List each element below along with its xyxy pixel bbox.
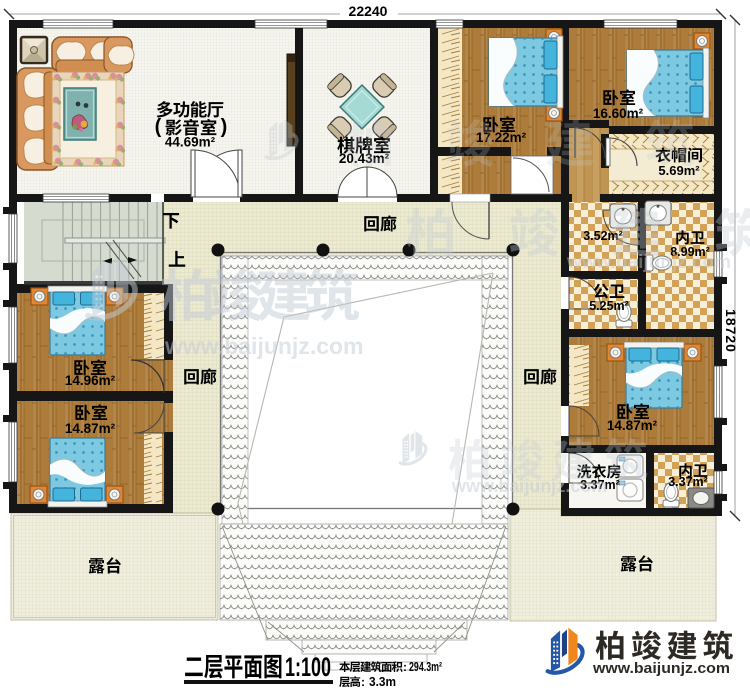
svg-text:3.3m: 3.3m [369,675,396,689]
svg-text:www.baijunjz.com: www.baijunjz.com [164,333,364,359]
svg-text:www.baijunjz.com: www.baijunjz.com [566,252,731,273]
svg-text:www.baijunjz.com: www.baijunjz.com [592,660,730,677]
svg-text:14.87m²: 14.87m² [65,421,116,436]
svg-text:(: ( [155,116,162,138]
svg-text:44.69m²: 44.69m² [165,135,216,150]
svg-text:5.25m²: 5.25m² [589,299,629,313]
svg-text::: : [403,660,407,674]
svg-text:www.baijunjz.com: www.baijunjz.com [451,476,607,496]
svg-text:16.60m²: 16.60m² [593,106,644,121]
svg-text:): ) [221,116,228,138]
svg-text:14.96m²: 14.96m² [65,373,116,388]
svg-text:1:100: 1:100 [285,652,331,682]
svg-text:294.3m²: 294.3m² [409,660,442,674]
svg-text::: : [361,675,365,689]
svg-text:3.37m²: 3.37m² [668,475,708,489]
svg-text:14.87m²: 14.87m² [607,418,658,433]
svg-text:18720: 18720 [723,309,739,353]
svg-text:22240: 22240 [349,3,388,19]
